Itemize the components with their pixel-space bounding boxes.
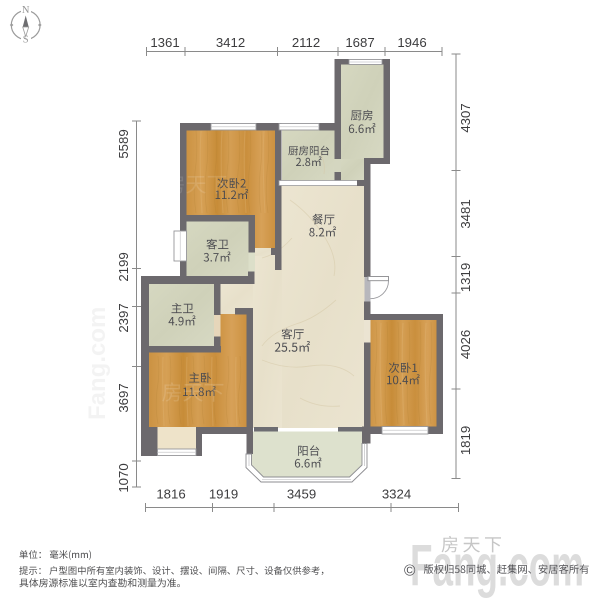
svg-text:4026: 4026 [458,330,473,359]
svg-text:1687: 1687 [345,35,374,50]
svg-text:Fang.com: Fang.com [84,307,111,420]
svg-text:1919: 1919 [209,487,238,502]
svg-text:1819: 1819 [458,426,473,455]
svg-text:2199: 2199 [116,252,131,281]
svg-text:3459: 3459 [287,487,316,502]
svg-text:1816: 1816 [156,487,185,502]
svg-text:©: © [404,563,416,580]
svg-text:4307: 4307 [458,103,473,132]
svg-text:N: N [22,5,30,16]
svg-text:1070: 1070 [116,463,131,492]
svg-text:2112: 2112 [292,35,320,50]
svg-text:1319: 1319 [458,263,473,292]
svg-text:3412: 3412 [216,35,245,50]
svg-text:5589: 5589 [116,129,131,158]
svg-text:3481: 3481 [458,199,473,228]
svg-text:3324: 3324 [382,487,411,502]
svg-text:3697: 3697 [116,383,131,412]
svg-text:1361: 1361 [150,35,179,50]
svg-text:1946: 1946 [397,35,426,50]
svg-text:2397: 2397 [116,303,131,332]
